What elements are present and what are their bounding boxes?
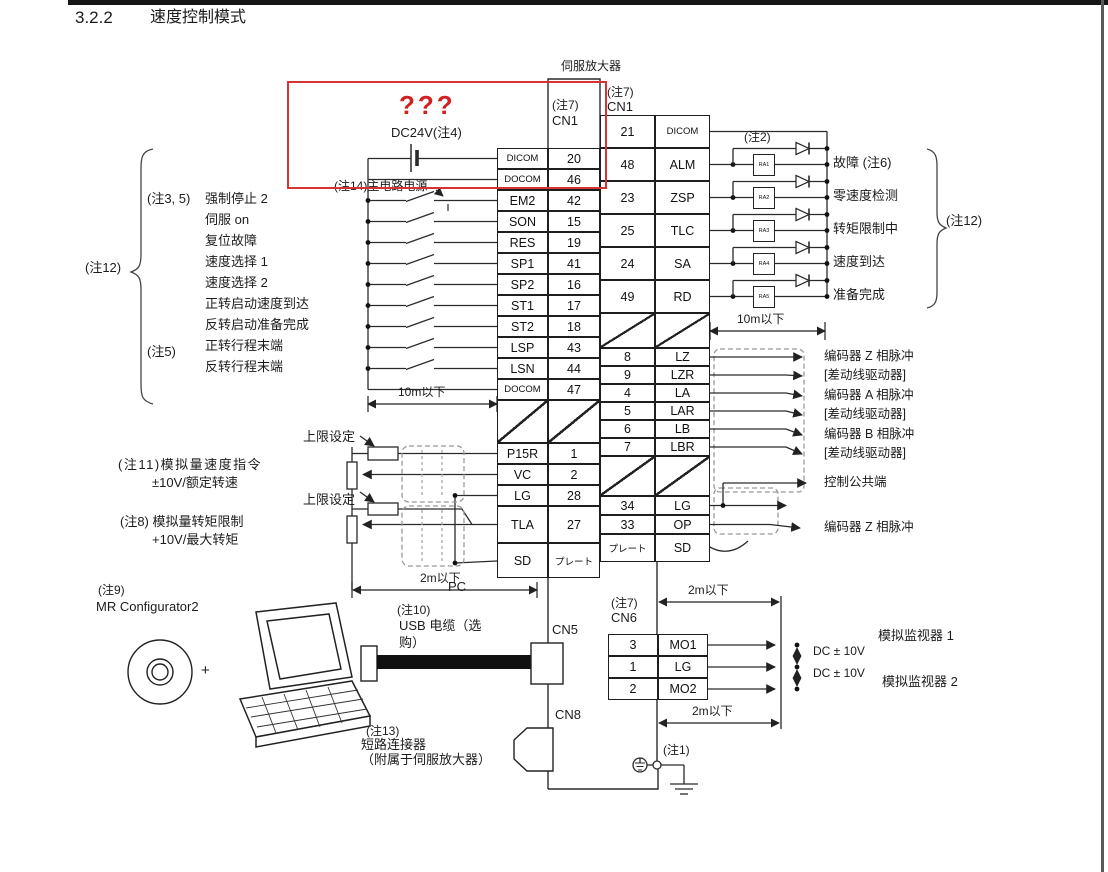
cn1-right-pin-name: SD [655,534,710,562]
cn1-left-pin-name: SP1 [497,253,548,274]
cn1-left-pin-number: 18 [548,316,600,337]
encoder-output-label: 编码器 B 相脉冲 [824,427,914,441]
cn1-right-pin-name: LAR [655,402,710,420]
cn1-right-pin-number: プレート [600,534,655,562]
cn6-pin-number: 1 [608,656,658,678]
encoder-output-label: 编码器 Z 相脉冲 [824,520,914,534]
cn1-right-pin-name: LB [655,420,710,438]
manual-page: 3.2.2 速度控制模式 伺服放大器 ??? DC24V(注4) (注7) CN… [0,0,1108,872]
cn6-note: (注7) [611,597,638,611]
cn1-left-pin-number: 20 [548,148,600,169]
note12-left: (注12) [85,261,121,276]
cn1-left-pin-number: 1 [548,443,600,464]
cn1-left-pin-name: TLA [497,506,548,543]
cn1-left-pin-number: 19 [548,232,600,253]
cn1-left-pin-name: ST1 [497,295,548,316]
analog-torque-note: (注8) 模拟量转矩限制 [120,515,244,530]
cn1-right-pin-number: 9 [600,366,655,384]
output-signal-label: 转矩限制中 [833,222,898,237]
cn1-right-pin-name: ZSP [655,181,710,214]
cn1-left-pin-name: P15R [497,443,548,464]
main-power-note: (注14)主电路电源 [334,180,427,194]
cn1-left-pin-number: 43 [548,337,600,358]
cn1-right-pin-number: 8 [600,348,655,366]
cn1-right-pin-number: 25 [600,214,655,247]
cd-icon [128,640,192,704]
cn1-left-break-cell [548,400,600,443]
cn1-left-pin-number: プレート [548,543,600,578]
cn6-pin-number: 3 [608,634,658,656]
cn1-left-pin-number: 47 [548,379,600,400]
encoder-output-label: [差动线驱动器] [824,446,906,460]
cn1-left-pin-name: LSP [497,337,548,358]
encoder-output-label: 控制公共端 [824,475,887,489]
cn1-right-pin-number: 5 [600,402,655,420]
cn1-right-pin-number: 23 [600,181,655,214]
note9: (注9) [98,584,125,598]
relay-box: RA1 [753,154,775,176]
encoder-output-label: [差动线驱动器] [824,407,906,421]
input-signal-label: 伺服 on [205,213,249,228]
cn1-left-pin-number: 41 [548,253,600,274]
cn1-left-pin-name: LG [497,485,548,506]
cn1-right-pin-number: 48 [600,148,655,181]
input-signal-label: 速度选择 2 [205,276,268,291]
cn1-right-pin-number: 24 [600,247,655,280]
short-connector-label-1: 短路连接器 [361,738,426,753]
pc-label: PC [448,580,466,595]
encoder-output-label: 编码器 A 相脉冲 [824,388,914,402]
input-signal-label: 反转启动准备完成 [205,318,309,333]
note12-right: (注12) [946,214,982,229]
cn1-left-pin-name: RES [497,232,548,253]
cn1-right-pin-number: 34 [600,496,655,515]
upper-limit-label-2: 上限设定 [303,493,355,508]
relay-box: RA4 [753,253,775,275]
cn1-left-pin-number: 44 [548,358,600,379]
note2: (注2) [744,131,771,145]
cn1-right-pin-name: DICOM [655,115,710,148]
cn1-right-pin-name: LG [655,496,710,515]
section-number: 3.2.2 [75,8,113,28]
page-title: 速度控制模式 [150,9,246,27]
cn1-right-note: (注7) [607,86,634,100]
cn1-right-pin-name: LZ [655,348,710,366]
input-signal-label: 速度选择 1 [205,255,268,270]
usb-cable-label-1: USB 电缆（选 [399,619,481,634]
cn1-right-pin-name: RD [655,280,710,313]
cn1-left-pin-name: SON [497,211,548,232]
cn1-right-break-cell [600,313,655,348]
dc10v-label-1: DC ± 10V [813,645,865,659]
laptop-icon [240,603,370,747]
output-signal-label: 零速度检测 [833,189,898,204]
cn1-left-pin-number: 42 [548,190,600,211]
cn1-left-pin-name: DICOM [497,148,548,169]
upper-limit-label-1: 上限设定 [303,430,355,445]
analog-speed-range: ±10V/额定转速 [152,476,238,491]
dim-10m-left-label: 10m以下 [398,386,445,400]
output-signal-label: 故障 (注6) [833,156,892,171]
cn1-right-pin-name: ALM [655,148,710,181]
input-signal-label: 正转启动速度到达 [205,297,309,312]
cn1-left-pin-number: 28 [548,485,600,506]
input-signal-label: 复位故障 [205,234,257,249]
cn1-left-pin-number: 27 [548,506,600,543]
relay-box: RA5 [753,286,775,308]
cn1-left-pin-name: DOCOM [497,379,548,400]
cn6-pin-name: LG [658,656,708,678]
cn1-left-pin-name: LSN [497,358,548,379]
cn1-left-break-cell [497,400,548,443]
encoder-output-label: 编码器 Z 相脉冲 [824,349,914,363]
cn1-right-pin-name: SA [655,247,710,280]
note10: (注10) [397,604,430,618]
cn6-pin-number: 2 [608,678,658,700]
cn1-right-break-cell [655,456,710,496]
short-connector-label-2: （附属于伺服放大器） [361,753,491,768]
cn1-right-pin-number: 4 [600,384,655,402]
cn6-connector-label: CN6 [611,611,637,626]
cn8-label: CN8 [555,708,581,723]
analog-monitor2-label: 模拟监视器 2 [882,675,958,690]
input-signal-label: 强制停止 2 [205,192,268,207]
red-question-annotation: ??? [399,91,456,121]
cn1-right-pin-name: LZR [655,366,710,384]
page-edge-line [1101,0,1104,872]
cn1-right-connector-label: CN1 [607,100,633,115]
cn6-pin-name: MO1 [658,634,708,656]
cn1-left-pin-name: VC [497,464,548,485]
plus-sign: + [201,662,210,679]
cn1-right-pin-number: 6 [600,420,655,438]
cn1-left-pin-name: SD [497,543,548,578]
analog-monitor1-label: 模拟监视器 1 [878,629,954,644]
dim-2m-bottom-label: 2m以下 [692,705,733,719]
mr-configurator-label: MR Configurator2 [96,600,199,615]
cn1-right-pin-number: 49 [600,280,655,313]
input-signal-label: 正转行程末端 [205,339,283,354]
cn1-left-pin-number: 16 [548,274,600,295]
dc10v-label-2: DC ± 10V [813,667,865,681]
dim-10m-right-label: 10m以下 [737,313,784,327]
note5: (注5) [147,345,176,360]
cn1-left-pin-name: SP2 [497,274,548,295]
cn1-right-pin-name: LA [655,384,710,402]
note1: (注1) [663,744,690,758]
cn1-right-pin-number: 33 [600,515,655,534]
cn1-left-pin-name: DOCOM [497,169,548,190]
cn1-right-break-cell [655,313,710,348]
dim-2m-top-label: 2m以下 [688,584,729,598]
amplifier-label: 伺服放大器 [561,60,621,74]
cn1-left-pin-number: 46 [548,169,600,190]
analog-speed-note: (注11)模拟量速度指令 [118,458,262,473]
encoder-wiring [700,349,806,551]
relay-box: RA2 [753,187,775,209]
analog-input-wiring [347,436,497,590]
dc24v-label: DC24V(注4) [391,126,462,141]
cn1-right-pin-name: OP [655,515,710,534]
output-signal-label: 准备完成 [833,288,885,303]
input-signal-label: 反转行程末端 [205,360,283,375]
note3-5: (注3, 5) [147,192,190,207]
cn1-left-pin-name: EM2 [497,190,548,211]
cn1-right-pin-name: LBR [655,438,710,456]
cn1-right-pin-number: 7 [600,438,655,456]
cn1-left-connector-label: CN1 [552,114,578,129]
cn1-right-pin-number: 21 [600,115,655,148]
cn1-left-note: (注7) [552,99,579,113]
cn1-left-pin-number: 2 [548,464,600,485]
cn1-left-pin-number: 17 [548,295,600,316]
analog-torque-range: +10V/最大转矩 [152,533,238,548]
cn1-left-pin-number: 15 [548,211,600,232]
usb-cable-label-2: 购） [399,636,425,651]
cn1-left-pin-name: ST2 [497,316,548,337]
encoder-output-label: [差动线驱动器] [824,368,906,382]
cn5-label: CN5 [552,623,578,638]
cn1-right-break-cell [600,456,655,496]
output-signal-label: 速度到达 [833,255,885,270]
relay-box: RA3 [753,220,775,242]
cn6-pin-name: MO2 [658,678,708,700]
cn1-right-pin-name: TLC [655,214,710,247]
section-rule [68,0,1108,5]
